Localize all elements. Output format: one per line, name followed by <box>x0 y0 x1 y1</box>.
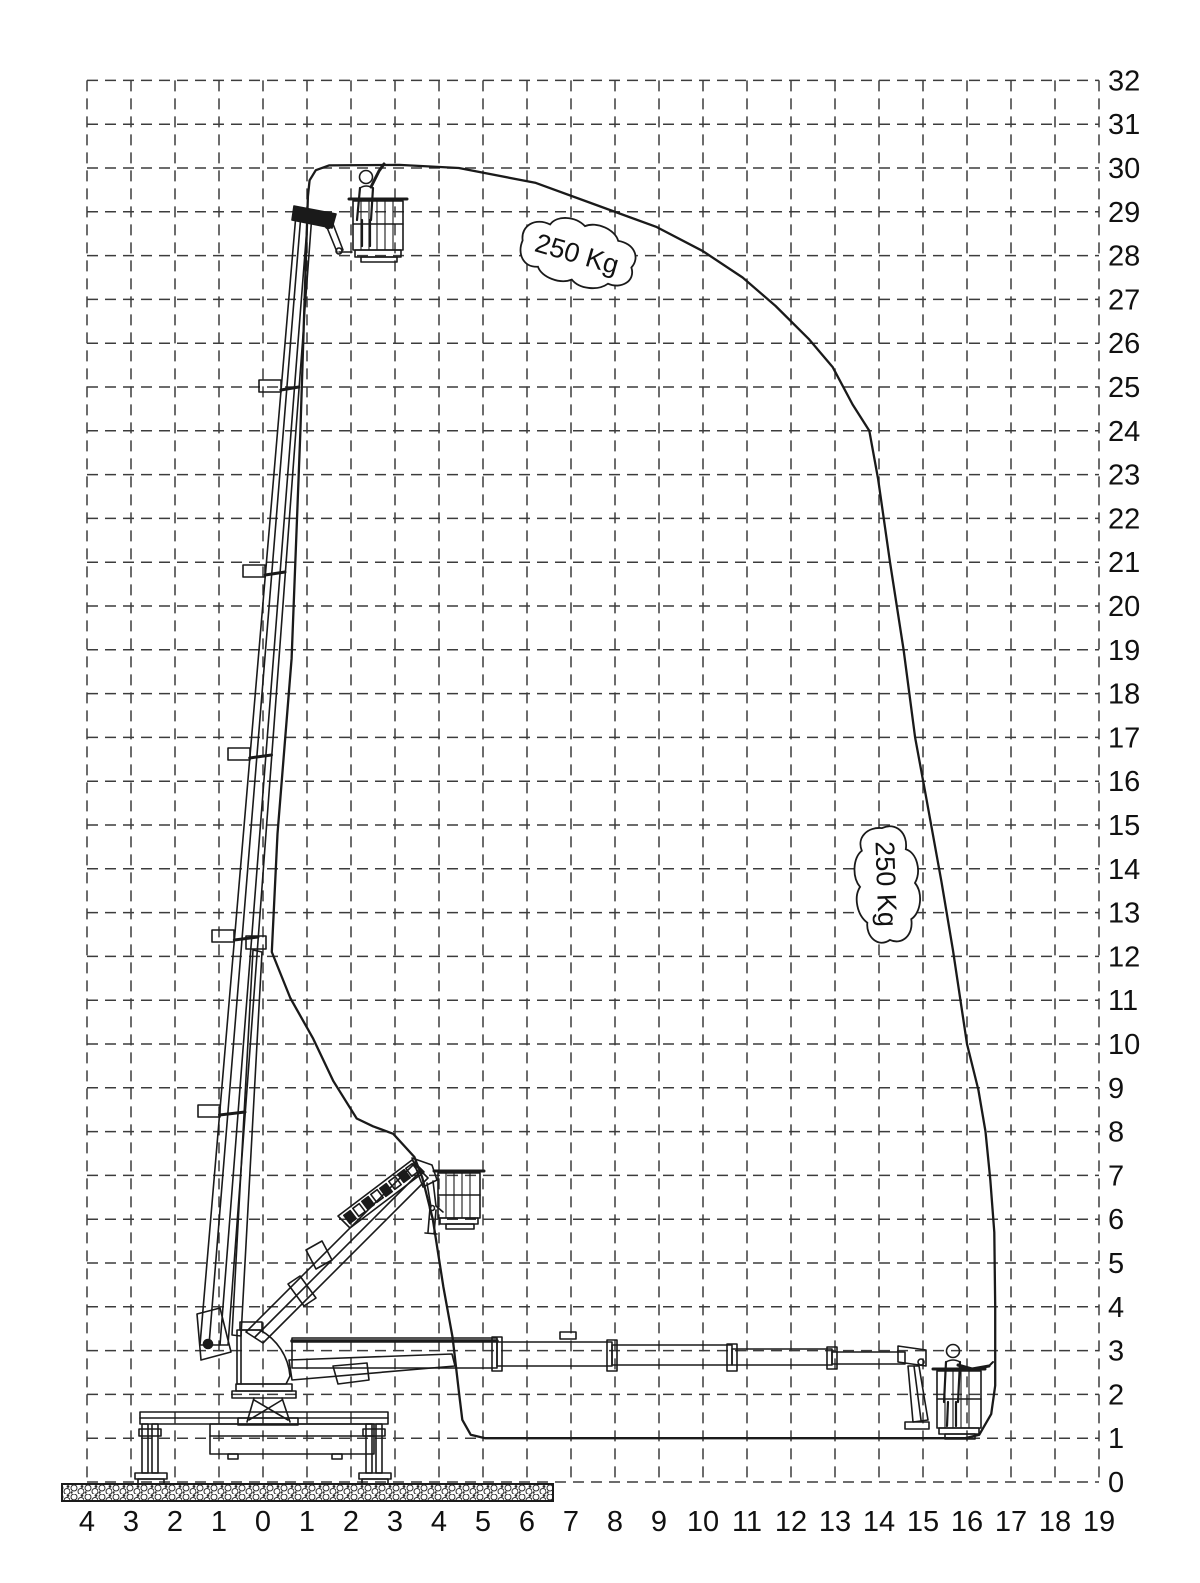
y-tick-label: 12 <box>1108 941 1140 973</box>
working-envelope-diagram: 250 Kg 250 Kg 43210123456789101112131415… <box>0 0 1200 1583</box>
x-tick-label: 14 <box>863 1506 895 1538</box>
x-tick-label: 3 <box>123 1506 139 1538</box>
x-tick-label: 0 <box>255 1506 271 1538</box>
load-label-right-text: 250 Kg <box>870 841 903 928</box>
diagram-canvas: 250 Kg 250 Kg 43210123456789101112131415… <box>0 0 1200 1583</box>
y-tick-label: 11 <box>1108 985 1138 1017</box>
x-tick-label: 7 <box>563 1506 579 1538</box>
y-tick-label: 26 <box>1108 328 1140 360</box>
x-tick-label: 1 <box>299 1506 315 1538</box>
y-tick-label: 1 <box>1108 1423 1124 1455</box>
x-tick-label: 13 <box>819 1506 851 1538</box>
x-tick-label: 5 <box>475 1506 491 1538</box>
y-tick-label: 25 <box>1108 372 1140 404</box>
x-tick-label: 17 <box>995 1506 1027 1538</box>
y-tick-label: 8 <box>1108 1117 1124 1149</box>
y-tick-label: 29 <box>1108 197 1140 229</box>
x-tick-label: 9 <box>651 1506 667 1538</box>
y-tick-label: 2 <box>1108 1379 1124 1411</box>
y-tick-label: 27 <box>1108 284 1140 316</box>
y-tick-label: 5 <box>1108 1248 1124 1280</box>
y-tick-label: 18 <box>1108 679 1140 711</box>
y-tick-label: 10 <box>1108 1029 1140 1061</box>
y-tick-label: 15 <box>1108 810 1140 842</box>
y-tick-label: 19 <box>1108 635 1140 667</box>
x-tick-label: 12 <box>775 1506 807 1538</box>
y-tick-label: 23 <box>1108 460 1140 492</box>
y-tick-label: 3 <box>1108 1336 1124 1368</box>
x-tick-label: 16 <box>951 1506 983 1538</box>
y-tick-label: 20 <box>1108 591 1140 623</box>
x-tick-label: 4 <box>431 1506 447 1538</box>
ground-hatch <box>62 1484 553 1501</box>
y-tick-label: 14 <box>1108 854 1140 886</box>
y-tick-label: 6 <box>1108 1204 1124 1236</box>
y-tick-label: 4 <box>1108 1292 1124 1324</box>
y-tick-label: 0 <box>1108 1467 1124 1499</box>
y-tick-label: 31 <box>1108 109 1140 141</box>
y-tick-label: 17 <box>1108 722 1140 754</box>
x-tick-label: 4 <box>79 1506 95 1538</box>
x-tick-label: 2 <box>343 1506 359 1538</box>
x-tick-label: 11 <box>732 1506 762 1538</box>
y-tick-label: 32 <box>1108 65 1140 97</box>
x-tick-label: 3 <box>387 1506 403 1538</box>
x-tick-label: 8 <box>607 1506 623 1538</box>
x-tick-label: 2 <box>167 1506 183 1538</box>
x-tick-label: 15 <box>907 1506 939 1538</box>
y-tick-label: 9 <box>1108 1073 1124 1105</box>
x-tick-label: 6 <box>519 1506 535 1538</box>
x-tick-label: 10 <box>687 1506 719 1538</box>
y-tick-label: 24 <box>1108 416 1140 448</box>
y-tick-label: 21 <box>1108 547 1140 579</box>
y-tick-label: 7 <box>1108 1160 1124 1192</box>
y-tick-label: 30 <box>1108 153 1140 185</box>
x-tick-label: 19 <box>1083 1506 1115 1538</box>
y-tick-label: 13 <box>1108 898 1140 930</box>
y-tick-label: 28 <box>1108 241 1140 273</box>
y-tick-label: 22 <box>1108 503 1140 535</box>
x-tick-label: 1 <box>211 1506 227 1538</box>
y-tick-label: 16 <box>1108 766 1140 798</box>
x-tick-label: 18 <box>1039 1506 1071 1538</box>
